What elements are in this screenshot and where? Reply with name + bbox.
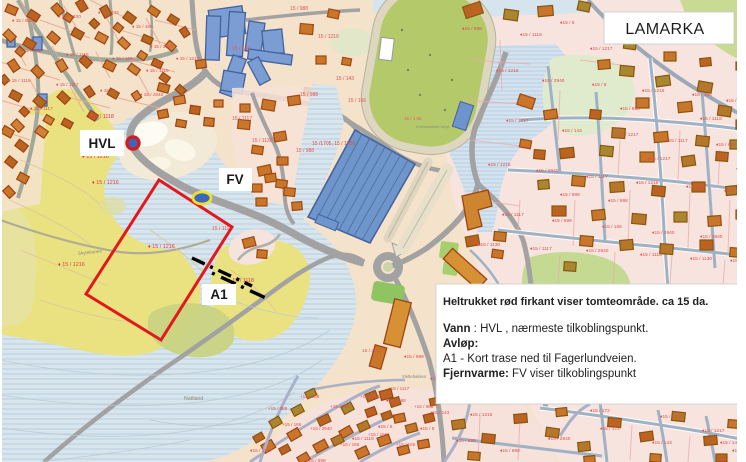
- svg-text:♦ 15 / 1216: ♦ 15 / 1216: [58, 262, 85, 268]
- svg-text:15 / 988: 15 / 988: [296, 148, 314, 154]
- svg-text:♦ 15 / 5: ♦ 15 / 5: [100, 88, 116, 93]
- svg-text:♦ 15 / 1217: ♦ 15 / 1217: [20, 48, 44, 53]
- svg-text:LAMARKA: LAMARKA: [625, 21, 704, 38]
- svg-text:♦15 / 698: ♦15 / 698: [456, 438, 476, 444]
- svg-text:♦15 / 5: ♦15 / 5: [560, 20, 575, 26]
- svg-text:15 /1705, 15 / 1706: 15 /1705, 15 / 1706: [312, 141, 355, 147]
- svg-text:♦15 / 5: ♦15 / 5: [592, 82, 607, 88]
- svg-text:15 / 203: 15 / 203: [362, 348, 380, 354]
- svg-text:♦15 / 172: ♦15 / 172: [600, 426, 620, 432]
- svg-text:Heltrukket rød firkant viser t: Heltrukket rød firkant viser tomteområde…: [443, 296, 708, 308]
- svg-text:♦15 / 1117: ♦15 / 1117: [250, 448, 272, 454]
- svg-text:♦15 / 1217: ♦15 / 1217: [702, 428, 725, 434]
- svg-text:Slettebakken: Slettebakken: [402, 374, 427, 379]
- svg-text:♦15 / 1118: ♦15 / 1118: [352, 436, 374, 442]
- svg-text:♦ 15 / 1118: ♦ 15 / 1118: [8, 78, 31, 83]
- svg-text:Avløp:: Avløp:: [443, 338, 478, 350]
- svg-text:♦15 / 5: ♦15 / 5: [378, 424, 393, 430]
- svg-text:♦15 / 2940: ♦15 / 2940: [548, 436, 571, 442]
- svg-text:♦15 / 698: ♦15 / 698: [560, 192, 580, 198]
- svg-text:♦15 / 1217: ♦15 / 1217: [590, 46, 613, 52]
- svg-text:15 / 1130: 15 / 1130: [252, 138, 273, 144]
- svg-text:+15 / 988: +15 / 988: [414, 404, 434, 409]
- svg-text:15 / 166: 15 / 166: [348, 98, 366, 104]
- svg-text:♦15 / 698: ♦15 / 698: [462, 26, 482, 32]
- svg-text:♦15 / 1117: ♦15 / 1117: [666, 138, 688, 144]
- svg-text:A1: A1: [210, 287, 228, 302]
- svg-text:♦15 / 1130: ♦15 / 1130: [478, 242, 500, 248]
- svg-text:♦15 / 2940: ♦15 / 2940: [700, 234, 723, 240]
- svg-text:♦15 / 1118: ♦15 / 1118: [640, 252, 662, 258]
- svg-text:♦15 / 1216: ♦15 / 1216: [496, 68, 519, 74]
- svg-text:Fjernvarme: FV viser tilkobli: Fjernvarme: FV viser tilkoblingspunkt: [443, 368, 637, 380]
- svg-text:♦ 15 / 143: ♦ 15 / 143: [98, 10, 119, 15]
- svg-text:♦15 / 698: ♦15 / 698: [608, 198, 628, 204]
- svg-text:♦15 / 143: ♦15 / 143: [562, 128, 582, 134]
- svg-text:♦ 15 / 988: ♦ 15 / 988: [12, 18, 33, 23]
- svg-text:♦15 / 1118: ♦15 / 1118: [700, 116, 722, 122]
- svg-text:♦15 / 1217: ♦15 / 1217: [506, 118, 529, 124]
- svg-text:A1 - Kort trase ned til Fagerl: A1 - Kort trase ned til Fagerlundveien.: [443, 353, 637, 365]
- svg-text:♦15 / 1216: ♦15 / 1216: [642, 88, 665, 94]
- svg-text:♦15 / 1217: ♦15 / 1217: [660, 414, 683, 420]
- svg-text:♦15 / 1217: ♦15 / 1217: [616, 132, 639, 138]
- svg-text:+15 / 143: +15 / 143: [430, 410, 450, 415]
- svg-text:♦ 15 / 1130: ♦ 15 / 1130: [58, 14, 81, 19]
- svg-text:♦15 / 1117: ♦15 / 1117: [530, 246, 552, 252]
- svg-text:Krohnsminde idr.pl.: Krohnsminde idr.pl.: [416, 124, 450, 129]
- svg-text:+15 / 166: +15 / 166: [340, 442, 360, 447]
- svg-text:15 / 143: 15 / 143: [232, 46, 250, 52]
- svg-text:♦15 / 2940: ♦15 / 2940: [536, 168, 559, 174]
- svg-text:♦ 15 / 166: ♦ 15 / 166: [112, 56, 133, 61]
- svg-text:♦ 15 / 1216: ♦ 15 / 1216: [92, 180, 119, 186]
- svg-text:♦15 / 2940: ♦15 / 2940: [542, 78, 565, 84]
- svg-text:15 / 1117: 15 / 1117: [232, 116, 252, 122]
- svg-text:+15 / 166: +15 / 166: [396, 442, 416, 447]
- svg-text:♦15 / 698: ♦15 / 698: [552, 218, 572, 224]
- svg-text:♦15 / 5: ♦15 / 5: [420, 426, 435, 432]
- svg-text:+15 / 2940: +15 / 2940: [310, 426, 332, 431]
- svg-text:15 / 988: 15 / 988: [300, 92, 318, 98]
- svg-text:♦ 15 / 1117: ♦ 15 / 1117: [56, 82, 79, 87]
- svg-text:♦15 / 2940: ♦15 / 2940: [586, 248, 609, 254]
- svg-text:♦15 / 698: ♦15 / 698: [306, 458, 326, 462]
- svg-text:♦15 / 1118: ♦15 / 1118: [520, 32, 542, 38]
- svg-text:♦ 15 / 2940: ♦ 15 / 2940: [150, 44, 174, 49]
- svg-text:15 / 1216: 15 / 1216: [318, 34, 339, 40]
- svg-text:♦15 / 1216: ♦15 / 1216: [470, 412, 493, 418]
- svg-text:+15 / 2940: +15 / 2940: [360, 394, 382, 399]
- svg-text:15 / 988: 15 / 988: [290, 6, 308, 12]
- svg-text:+15 / 166: +15 / 166: [282, 422, 302, 427]
- svg-text:♦15 / 1117: ♦15 / 1117: [586, 174, 608, 180]
- svg-text:♦ 15 / 1217: ♦ 15 / 1217: [176, 56, 200, 61]
- svg-text:♦ 15 / 1216: ♦ 15 / 1216: [148, 244, 175, 250]
- svg-text:♦15 / 172: ♦15 / 172: [590, 408, 610, 414]
- svg-text:♦ 15 / 166: ♦ 15 / 166: [132, 24, 153, 29]
- svg-text:♦15 / 1130: ♦15 / 1130: [690, 256, 712, 262]
- svg-text:♦15 / 988: ♦15 / 988: [620, 106, 640, 112]
- svg-text:♦ 15 / 1118: ♦ 15 / 1118: [88, 114, 114, 120]
- svg-text:Vann : HVL , nærmeste tilkobli: Vann : HVL , nærmeste tilkoblingspunkt.: [443, 323, 648, 335]
- svg-text:+15 / 988: +15 / 988: [268, 406, 288, 411]
- svg-text:♦ 15 / 1118: ♦ 15 / 1118: [146, 68, 169, 73]
- svg-text:♦15 / 172: ♦15 / 172: [686, 184, 706, 190]
- svg-text:15 / 1 06: 15 / 1 06: [404, 116, 422, 121]
- svg-text:♦15 / 698: ♦15 / 698: [500, 448, 520, 454]
- svg-text:♦ 15 / 2940: ♦ 15 / 2940: [140, 92, 164, 97]
- svg-text:Nattland: Nattland: [184, 396, 203, 402]
- svg-text:♦15 / 166: ♦15 / 166: [602, 224, 622, 230]
- svg-text:♦15 / 143: ♦15 / 143: [652, 440, 672, 446]
- svg-text:♦15 / 1216: ♦15 / 1216: [488, 162, 511, 168]
- svg-text:HVL: HVL: [89, 136, 116, 151]
- svg-text:♦15 / 1216: ♦15 / 1216: [636, 180, 659, 186]
- svg-text:♦15 / 988: ♦15 / 988: [404, 354, 424, 360]
- svg-text:♦ 15 / 1118: ♦ 15 / 1118: [66, 52, 89, 57]
- svg-text:♦15 / 2940: ♦15 / 2940: [652, 230, 675, 236]
- svg-text:♦15 / 1117: ♦15 / 1117: [502, 212, 524, 218]
- svg-text:♦ 15 / 1117: ♦ 15 / 1117: [30, 106, 53, 111]
- svg-text:+15 / 988: +15 / 988: [300, 394, 320, 399]
- svg-text:♦15 / 166: ♦15 / 166: [692, 92, 712, 98]
- svg-text:♦15 / 1217: ♦15 / 1217: [648, 156, 671, 162]
- svg-text:FV: FV: [226, 172, 243, 187]
- svg-text:♦15 / 698: ♦15 / 698: [716, 142, 736, 148]
- svg-text:♦15 / 988: ♦15 / 988: [386, 398, 406, 404]
- svg-text:15 / 143: 15 / 143: [336, 76, 354, 82]
- svg-text:+15 / 1117: +15 / 1117: [388, 386, 410, 391]
- svg-text:+15 / 988: +15 / 988: [330, 404, 350, 409]
